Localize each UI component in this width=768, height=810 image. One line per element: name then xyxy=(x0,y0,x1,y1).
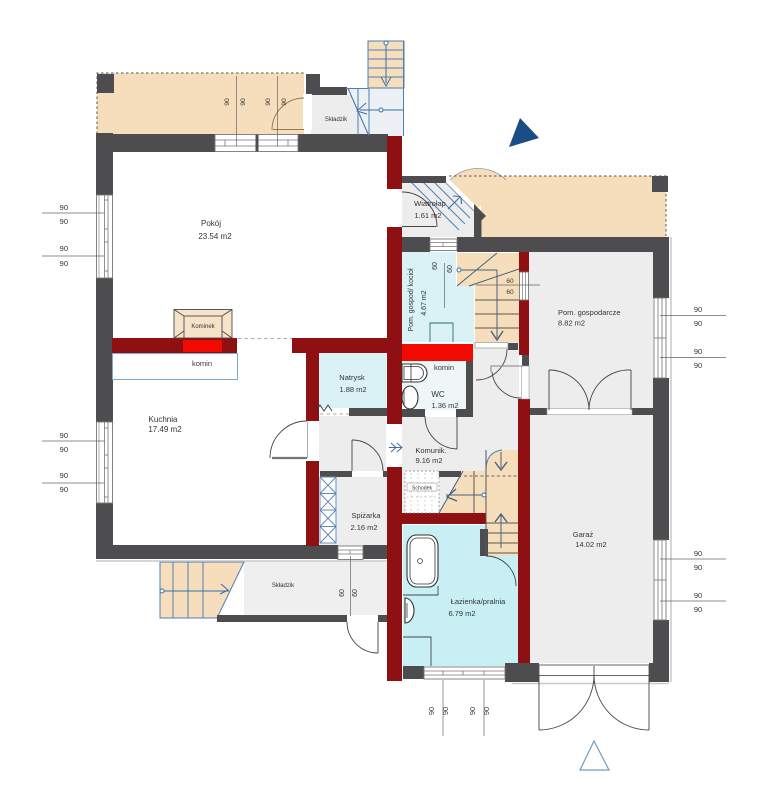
svg-text:60: 60 xyxy=(432,262,439,270)
svg-text:90: 90 xyxy=(694,347,702,356)
svg-text:60: 60 xyxy=(506,278,514,285)
svg-text:Składzik: Składzik xyxy=(325,117,348,123)
svg-text:90: 90 xyxy=(694,591,702,600)
svg-text:90: 90 xyxy=(265,98,272,106)
svg-text:23.54 m2: 23.54 m2 xyxy=(198,232,232,241)
svg-text:60: 60 xyxy=(447,265,454,273)
svg-text:Łazienka/pralnia: Łazienka/pralnia xyxy=(451,597,506,606)
svg-text:90: 90 xyxy=(694,305,702,314)
svg-text:60: 60 xyxy=(506,289,514,296)
svg-text:Komunik.: Komunik. xyxy=(415,446,446,455)
svg-text:Kuchnia: Kuchnia xyxy=(149,415,178,424)
svg-text:90: 90 xyxy=(60,217,68,226)
svg-text:90: 90 xyxy=(427,707,436,715)
svg-text:90: 90 xyxy=(468,707,477,715)
svg-text:90: 90 xyxy=(694,319,702,328)
svg-text:Pom. gospod/ kocioł: Pom. gospod/ kocioł xyxy=(408,268,415,331)
svg-text:90: 90 xyxy=(281,98,288,106)
svg-text:90: 90 xyxy=(60,471,68,480)
svg-text:90: 90 xyxy=(694,361,702,370)
svg-text:Pokój: Pokój xyxy=(201,219,221,228)
svg-text:90: 90 xyxy=(60,445,68,454)
svg-text:1.61 m2: 1.61 m2 xyxy=(414,211,441,220)
svg-text:90: 90 xyxy=(694,563,702,572)
svg-text:90: 90 xyxy=(60,485,68,494)
svg-text:90: 90 xyxy=(224,98,231,106)
svg-text:8.82 m2: 8.82 m2 xyxy=(558,319,585,328)
svg-text:Natrysk: Natrysk xyxy=(339,373,365,382)
svg-text:14.02 m2: 14.02 m2 xyxy=(575,540,606,549)
svg-text:2.16 m2: 2.16 m2 xyxy=(350,523,377,532)
svg-text:90: 90 xyxy=(60,203,68,212)
svg-text:Schodek: Schodek xyxy=(412,486,433,492)
svg-text:90: 90 xyxy=(60,244,68,253)
svg-text:Kominek: Kominek xyxy=(191,324,215,330)
svg-text:6.79 m2: 6.79 m2 xyxy=(448,609,475,618)
svg-text:Wiatrołap: Wiatrołap xyxy=(414,199,446,208)
svg-text:17.49 m2: 17.49 m2 xyxy=(148,425,182,434)
svg-text:90: 90 xyxy=(60,431,68,440)
svg-text:4.67 m2: 4.67 m2 xyxy=(421,290,428,315)
svg-text:Garaż: Garaż xyxy=(573,530,594,539)
svg-text:90: 90 xyxy=(694,605,702,614)
svg-text:60: 60 xyxy=(352,589,359,597)
svg-text:1.36 m2: 1.36 m2 xyxy=(431,401,458,410)
svg-text:90: 90 xyxy=(240,98,247,106)
svg-text:WC: WC xyxy=(431,390,445,399)
svg-text:1.88 m2: 1.88 m2 xyxy=(339,385,366,394)
svg-text:90: 90 xyxy=(694,549,702,558)
svg-text:9.16 m2: 9.16 m2 xyxy=(415,456,442,465)
svg-text:90: 90 xyxy=(441,707,450,715)
svg-text:Spiżarka: Spiżarka xyxy=(351,511,381,520)
svg-text:90: 90 xyxy=(482,707,491,715)
svg-text:komin: komin xyxy=(434,363,454,372)
svg-text:60: 60 xyxy=(339,589,346,597)
svg-text:90: 90 xyxy=(60,259,68,268)
svg-text:Składzik: Składzik xyxy=(272,583,295,589)
svg-text:komin: komin xyxy=(192,359,212,368)
svg-text:Pom. gospodarcze: Pom. gospodarcze xyxy=(558,308,621,317)
